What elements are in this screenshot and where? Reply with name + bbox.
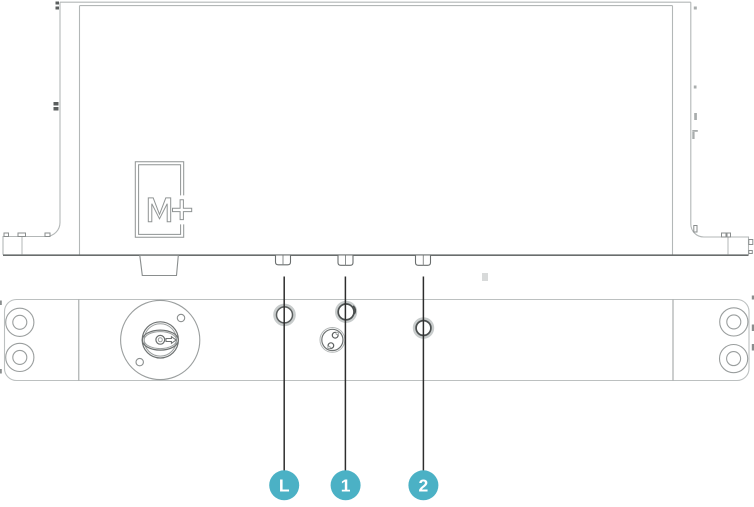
svg-text:1: 1 [341,476,351,496]
svg-text:L: L [279,476,290,496]
svg-text:2: 2 [419,476,429,496]
